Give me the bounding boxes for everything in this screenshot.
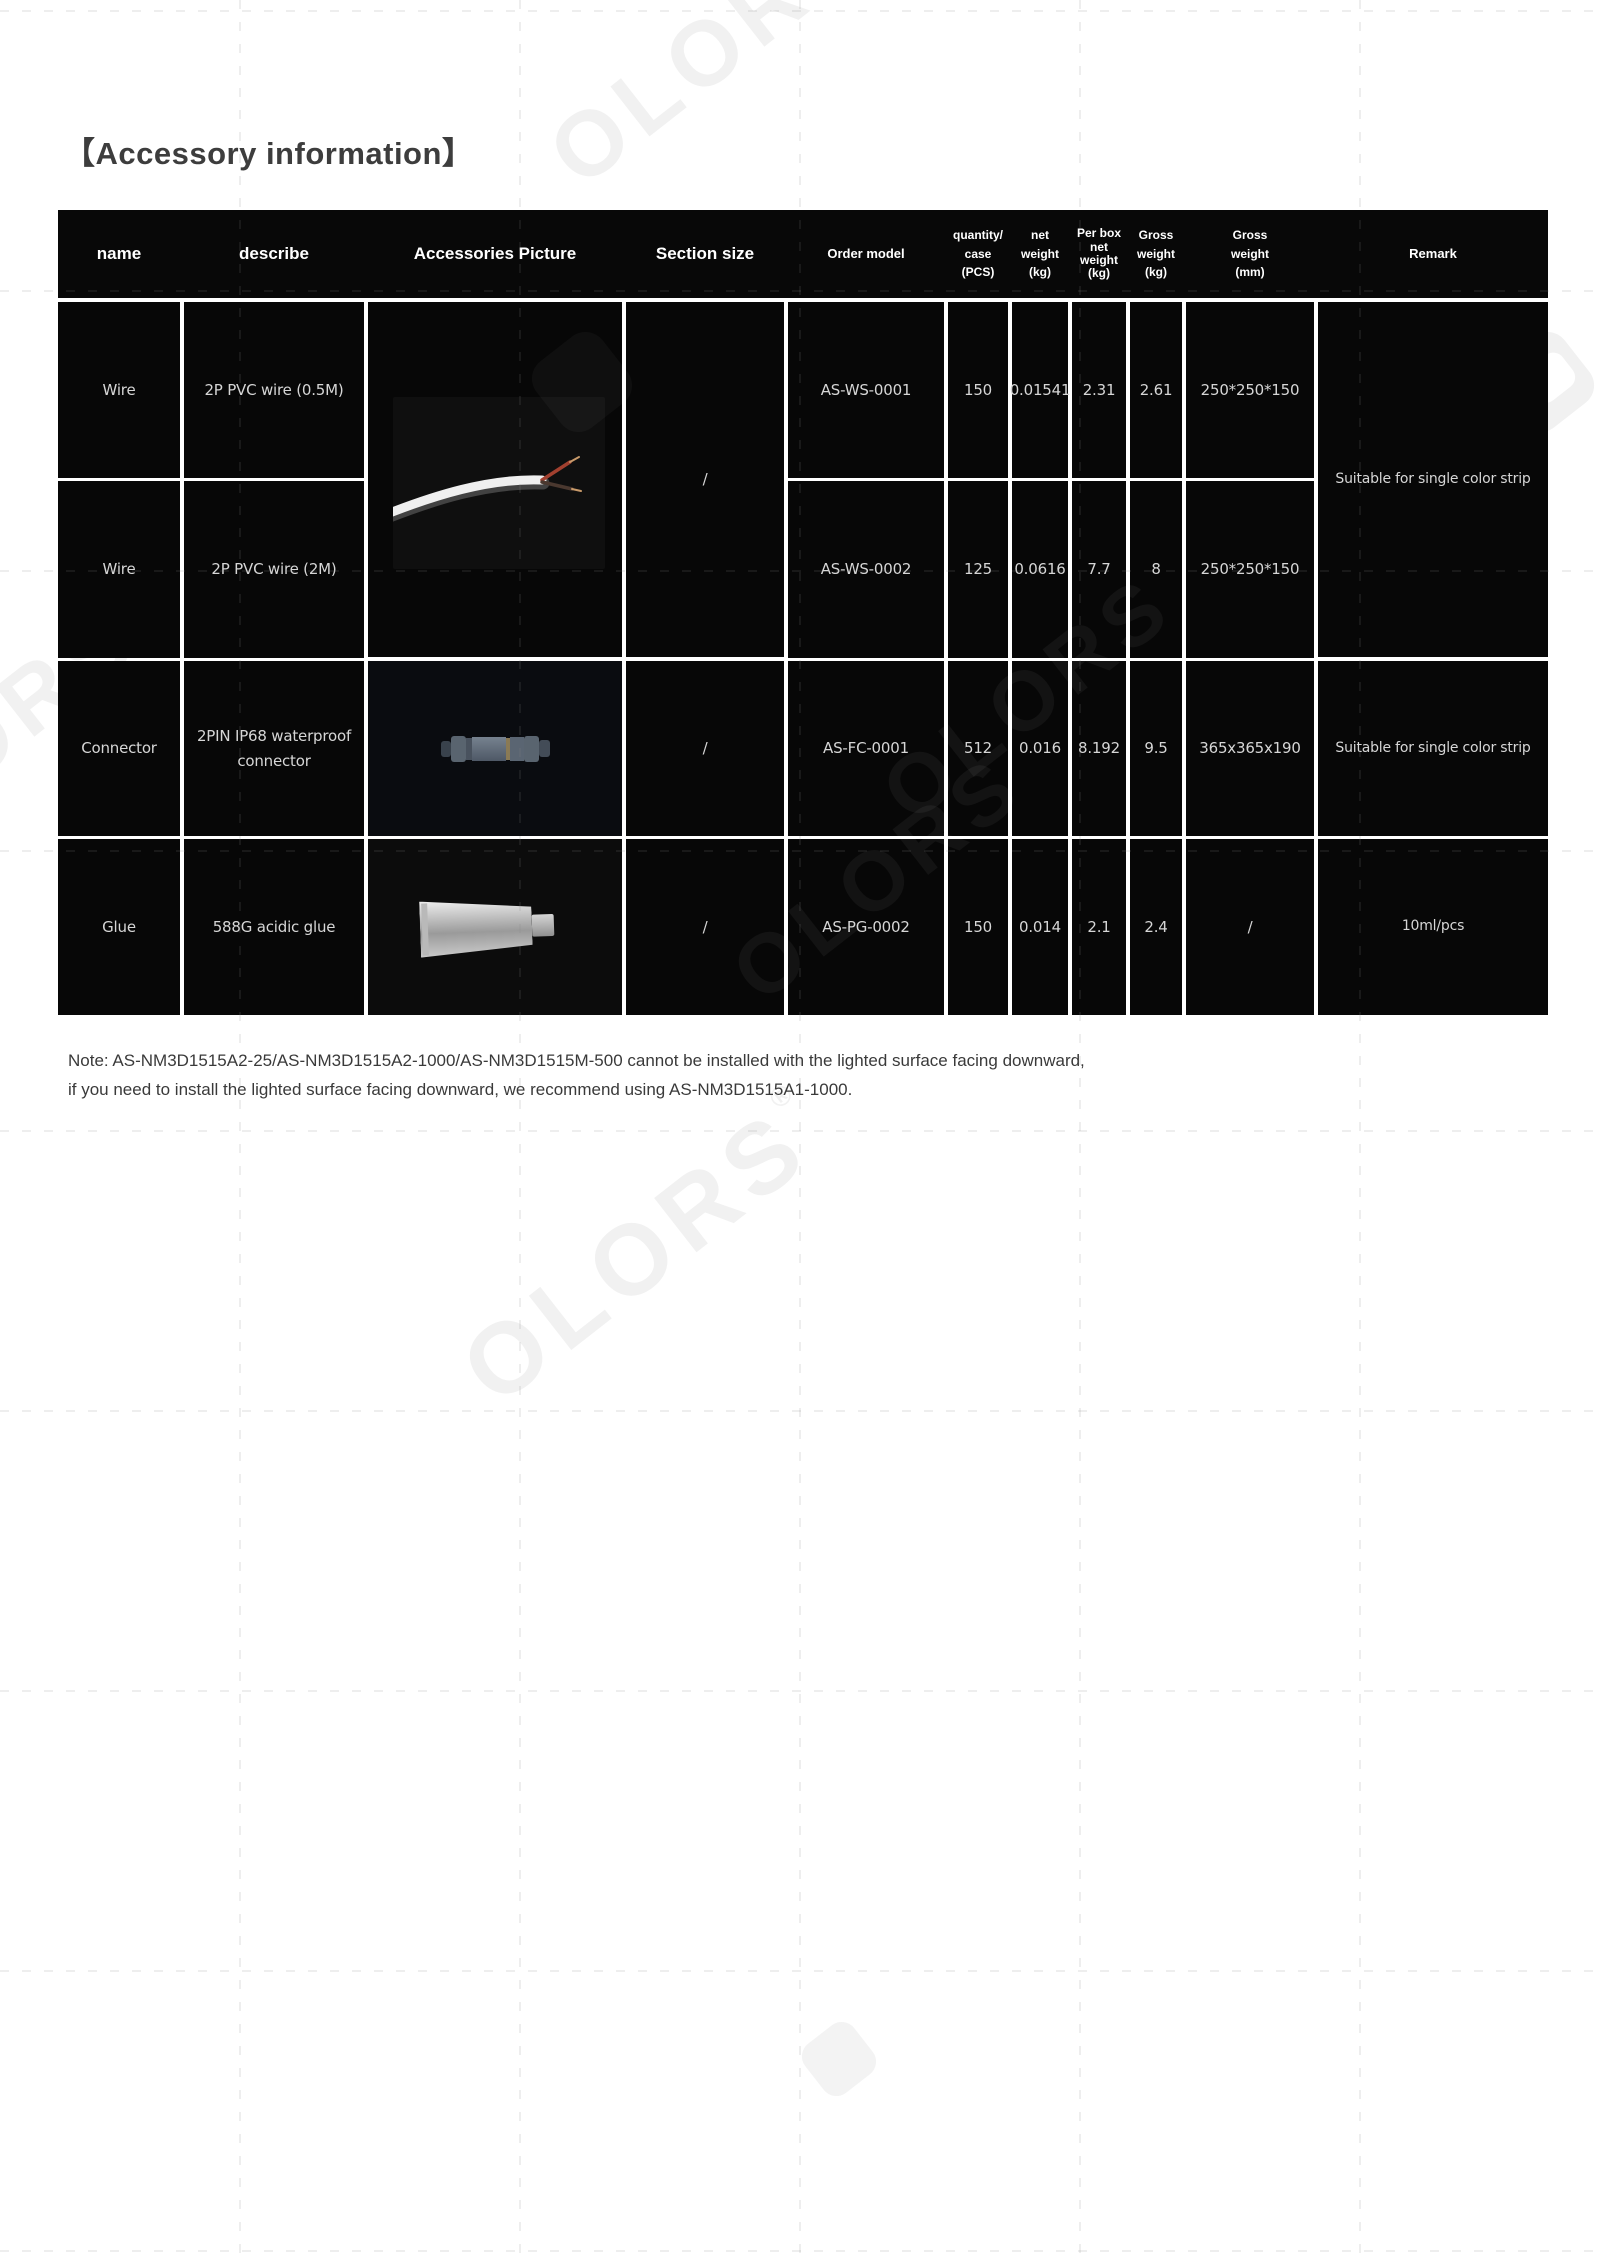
header-describe: describe: [184, 210, 364, 298]
colors-watermark: OLORS®: [441, 1068, 856, 1427]
cell-describe: 588G acidic glue: [184, 839, 364, 1015]
note-line-1: Note: AS-NM3D1515A2-25/AS-NM3D1515A2-100…: [68, 1046, 1288, 1075]
header-gross-kg: Gross weight (kg): [1130, 210, 1182, 298]
colors-logo-watermark: [795, 2015, 882, 2102]
cell-perbox-net: 2.1: [1072, 839, 1126, 1015]
cell-perbox-net: 8.192: [1072, 661, 1126, 836]
cell-quantity: 150: [948, 302, 1008, 478]
page-title: 【Accessory information】: [64, 128, 473, 173]
header-order-model: Order model: [788, 210, 944, 298]
cell-describe: 2P PVC wire (0.5M): [184, 302, 364, 478]
cell-gross-kg: 9.5: [1130, 661, 1182, 836]
connector-image: [368, 661, 622, 836]
table-header-row: name describe Accessories Picture Sectio…: [58, 210, 1548, 298]
cell-remark: Suitable for single color strip: [1318, 302, 1548, 657]
header-perbox-net: Per box net weight (kg): [1072, 210, 1126, 298]
header-picture: Accessories Picture: [368, 210, 622, 298]
cell-net-weight: 0.01541: [1012, 302, 1068, 478]
cell-perbox-net: 7.7: [1072, 481, 1126, 658]
cell-gross-kg: 8: [1130, 481, 1182, 658]
header-quantity: quantity/ case (PCS): [948, 210, 1008, 298]
cell-remark: Suitable for single color strip: [1318, 661, 1548, 836]
cell-remark: 10ml/pcs: [1318, 839, 1548, 1015]
cell-section-size: /: [626, 661, 784, 836]
header-net-weight: net weight (kg): [1012, 210, 1068, 298]
cell-name: Glue: [58, 839, 180, 1015]
cell-gross-mm: 250*250*150: [1186, 302, 1314, 478]
header-gross-mm: Gross weight (mm): [1186, 210, 1314, 298]
cell-quantity: 512: [948, 661, 1008, 836]
header-name: name: [58, 210, 180, 298]
cell-perbox-net: 2.31: [1072, 302, 1126, 478]
wire-image: [393, 397, 605, 569]
cell-order-model: AS-FC-0001: [788, 661, 944, 836]
cell-section-size: /: [626, 302, 784, 657]
cell-quantity: 150: [948, 839, 1008, 1015]
cell-describe: 2PIN IP68 waterproof connector: [184, 661, 364, 836]
cell-gross-mm: 250*250*150: [1186, 481, 1314, 658]
cell-gross-mm: /: [1186, 839, 1314, 1015]
note-text: Note: AS-NM3D1515A2-25/AS-NM3D1515A2-100…: [68, 1046, 1288, 1104]
cell-quantity: 125: [948, 481, 1008, 658]
cell-gross-kg: 2.61: [1130, 302, 1182, 478]
cell-net-weight: 0.014: [1012, 839, 1068, 1015]
colors-watermark: OLORS®: [530, 0, 910, 207]
cell-order-model: AS-WS-0001: [788, 302, 944, 478]
cell-gross-mm: 365x365x190: [1186, 661, 1314, 836]
cell-name: Wire: [58, 481, 180, 658]
cell-net-weight: 0.016: [1012, 661, 1068, 836]
cell-section-size: /: [626, 839, 784, 1015]
cell-gross-kg: 2.4: [1130, 839, 1182, 1015]
note-line-2: if you need to install the lighted surfa…: [68, 1075, 1288, 1104]
glue-image: [368, 839, 622, 1015]
cell-net-weight: 0.0616: [1012, 481, 1068, 658]
cell-name: Connector: [58, 661, 180, 836]
cell-order-model: AS-WS-0002: [788, 481, 944, 658]
header-remark: Remark: [1318, 210, 1548, 298]
cell-describe: 2P PVC wire (2M): [184, 481, 364, 658]
header-section: Section size: [626, 210, 784, 298]
accessory-info-page: OLORS® OLORS® OLORS® 【Accessory informat…: [0, 0, 1600, 2263]
cell-order-model: AS-PG-0002: [788, 839, 944, 1015]
cell-name: Wire: [58, 302, 180, 478]
